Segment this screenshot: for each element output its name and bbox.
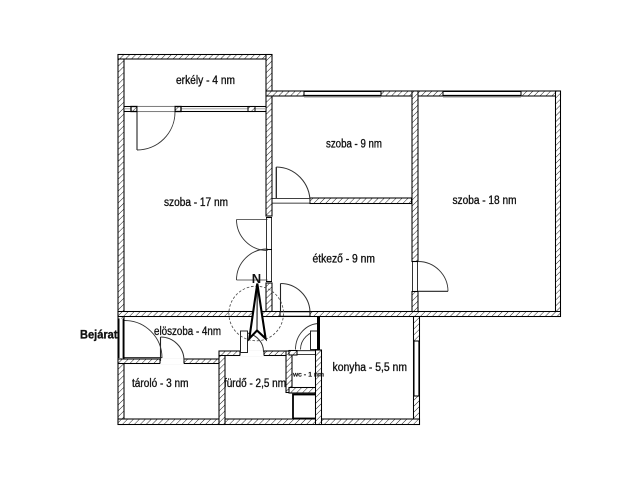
svg-text:erkély - 4 nm: erkély - 4 nm — [176, 75, 235, 87]
svg-text:Bejárat: Bejárat — [80, 330, 118, 342]
svg-text:szoba - 18 nm: szoba - 18 nm — [453, 195, 517, 207]
svg-text:elöszoba - 4nm: elöszoba - 4nm — [154, 326, 221, 338]
svg-text:étkező - 9 nm: étkező - 9 nm — [313, 254, 376, 266]
svg-text:tároló - 3 nm: tároló - 3 nm — [132, 378, 189, 390]
svg-text:konyha - 5,5 nm: konyha - 5,5 nm — [333, 362, 408, 374]
svg-text:wc - 1 nm: wc - 1 nm — [292, 372, 324, 379]
svg-text:szoba - 17 nm: szoba - 17 nm — [164, 197, 228, 209]
svg-text:szoba - 9 nm: szoba - 9 nm — [326, 139, 382, 151]
svg-text:fürdő - 2,5 nm: fürdő - 2,5 nm — [224, 378, 286, 390]
